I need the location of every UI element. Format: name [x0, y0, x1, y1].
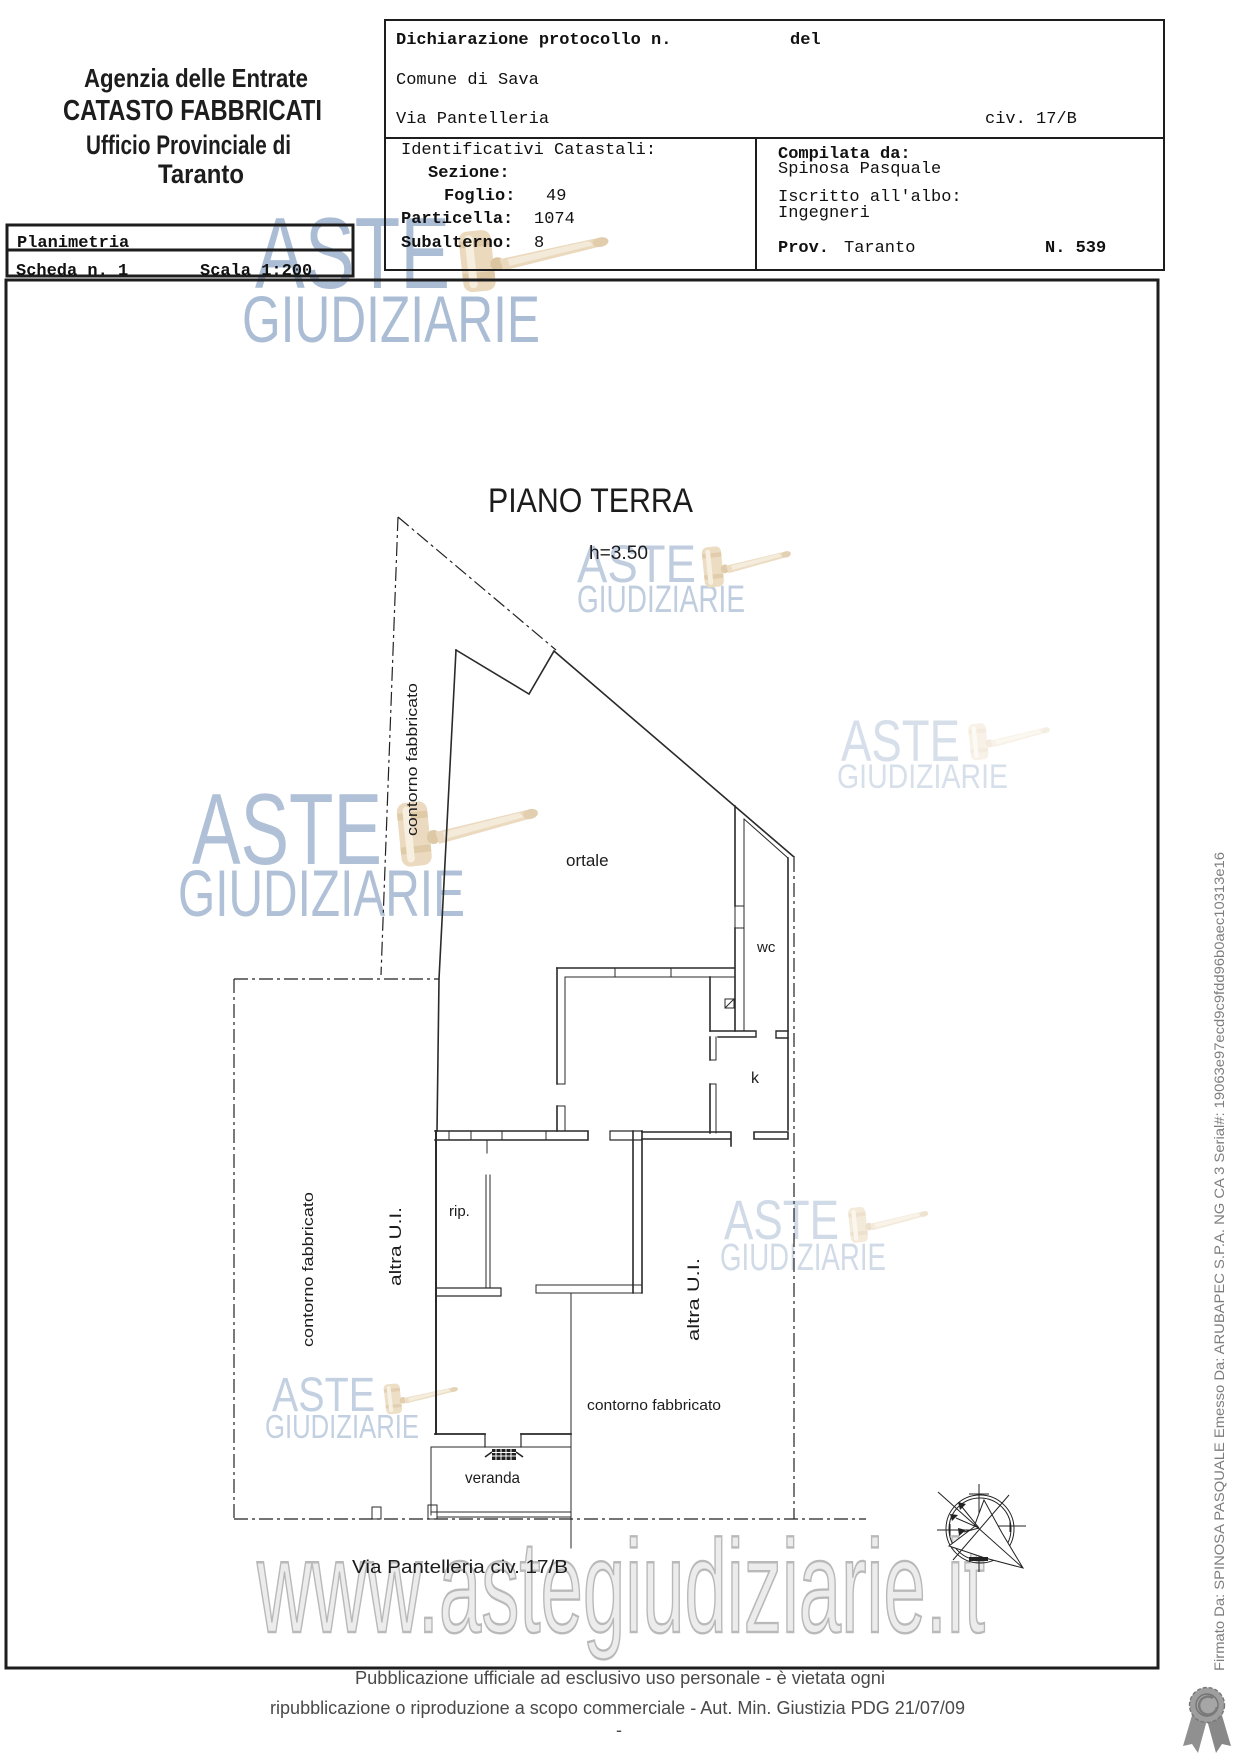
svg-text:www.astegiudiziarie.it: www.astegiudiziarie.it [256, 1513, 985, 1660]
svg-text:Prov.: Prov. [778, 239, 829, 258]
svg-text:49: 49 [546, 187, 566, 206]
svg-text:Planimetria: Planimetria [17, 234, 129, 253]
svg-text:Ingegneri: Ingegneri [778, 204, 870, 223]
svg-text:GIUDIZIARIE: GIUDIZIARIE [837, 758, 1008, 796]
svg-text:Spinosa Pasquale: Spinosa Pasquale [778, 160, 941, 179]
svg-text:Dichiarazione protocollo n.: Dichiarazione protocollo n. [396, 31, 671, 50]
svg-text:h=3.50: h=3.50 [589, 543, 648, 564]
svg-text:GIUDIZIARIE: GIUDIZIARIE [178, 856, 465, 930]
svg-text:Particella:: Particella: [401, 210, 513, 229]
svg-text:Pubblicazione ufficiale ad esc: Pubblicazione ufficiale ad esclusivo uso… [355, 1668, 885, 1688]
svg-text:Scala 1:200: Scala 1:200 [200, 262, 312, 281]
svg-text:altra U.I.: altra U.I. [386, 1207, 405, 1286]
svg-text:GIUDIZIARIE: GIUDIZIARIE [242, 282, 540, 356]
svg-text:CATASTO FABBRICATI: CATASTO FABBRICATI [63, 95, 322, 127]
svg-text:civ. 17/B: civ. 17/B [985, 110, 1077, 129]
svg-text:Foglio:: Foglio: [444, 187, 515, 206]
svg-text:Via Pantelleria civ. 17/B: Via Pantelleria civ. 17/B [352, 1557, 568, 1577]
svg-text:contorno fabbricato: contorno fabbricato [587, 1397, 721, 1414]
svg-text:rip.: rip. [449, 1203, 470, 1220]
svg-text:8: 8 [534, 234, 544, 253]
svg-text:Subalterno:: Subalterno: [401, 234, 513, 253]
svg-text:Identificativi Catastali:: Identificativi Catastali: [401, 141, 656, 160]
svg-text:-: - [616, 1720, 622, 1740]
svg-text:k: k [751, 1070, 760, 1087]
svg-text:N. 539: N. 539 [1045, 239, 1106, 258]
svg-text:contorno fabbricato: contorno fabbricato [404, 683, 421, 836]
svg-text:del: del [790, 31, 821, 50]
svg-text:Taranto: Taranto [844, 239, 915, 258]
svg-text:GIUDIZIARIE: GIUDIZIARIE [720, 1237, 886, 1279]
svg-text:1074: 1074 [534, 210, 575, 229]
svg-text:veranda: veranda [465, 1470, 520, 1487]
svg-text:Agenzia delle Entrate: Agenzia delle Entrate [84, 63, 308, 93]
svg-text:altra U.I.: altra U.I. [684, 1258, 703, 1341]
svg-text:Taranto: Taranto [158, 159, 244, 189]
svg-text:Firmato Da: SPINOSA PASQUALE E: Firmato Da: SPINOSA PASQUALE Emesso Da: … [1211, 852, 1227, 1671]
svg-text:ortale: ortale [566, 851, 609, 870]
svg-text:contorno fabbricato: contorno fabbricato [300, 1192, 317, 1347]
svg-text:PIANO TERRA: PIANO TERRA [488, 482, 693, 520]
svg-text:ripubblicazione o riproduzione: ripubblicazione o riproduzione a scopo c… [270, 1698, 965, 1718]
svg-text:Sezione:: Sezione: [428, 164, 510, 183]
svg-text:wc: wc [756, 939, 776, 956]
svg-text:Comune di Sava: Comune di Sava [396, 71, 539, 90]
svg-text:Scheda n. 1: Scheda n. 1 [16, 262, 128, 281]
svg-text:Via Pantelleria: Via Pantelleria [396, 110, 549, 129]
svg-text:Ufficio Provinciale di: Ufficio Provinciale di [86, 130, 291, 160]
